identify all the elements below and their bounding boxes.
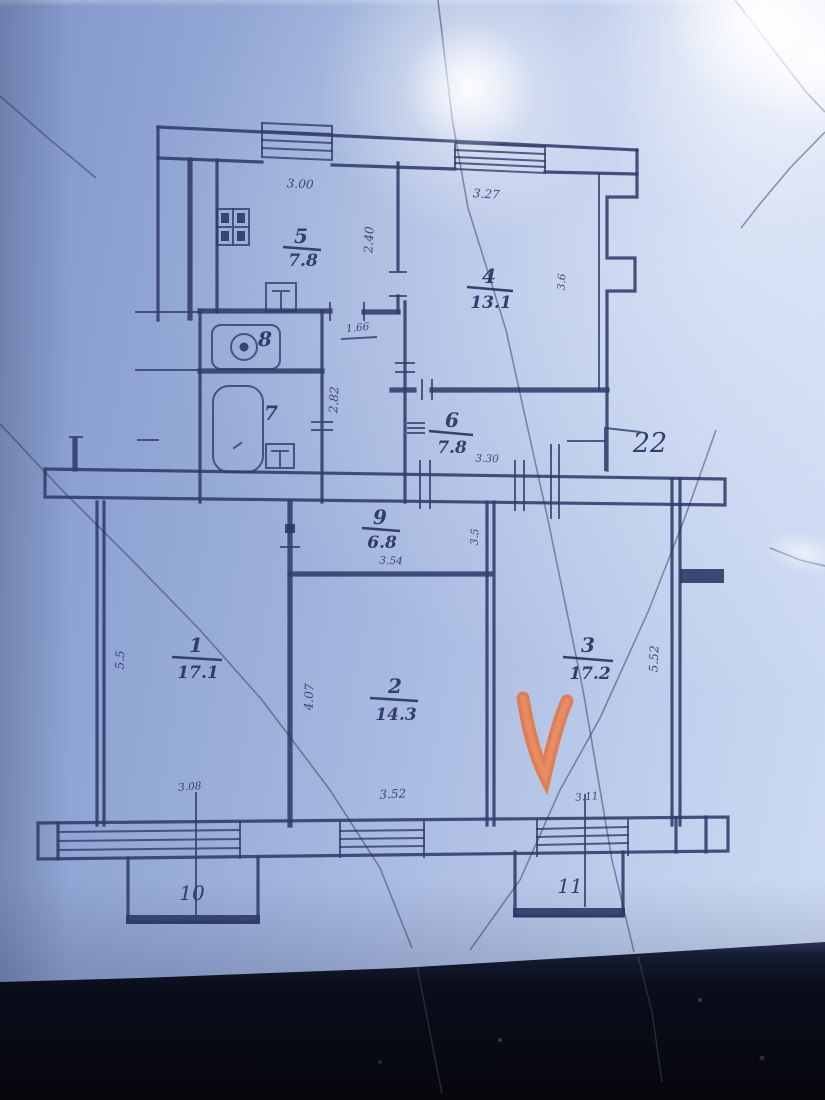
- stove-icon: [217, 209, 249, 245]
- dim-bath-depth: 2.82: [326, 386, 341, 414]
- labels-layer: 5 7.8 4 13.1 8 7 6 7.8 9 6.8 1: [172, 224, 667, 905]
- svg-text:2: 2: [387, 674, 402, 698]
- room-5-label: 5 7.8: [283, 224, 321, 271]
- svg-text:7.8: 7.8: [288, 251, 318, 271]
- dim-hall9-width: 3.54: [379, 555, 403, 568]
- balcony-11-label: 11: [557, 874, 582, 898]
- svg-text:5: 5: [294, 224, 308, 248]
- window-bottom-left: [58, 822, 240, 858]
- floorplan-drawing: 5 7.8 4 13.1 8 7 6 7.8 9 6.8 1: [0, 0, 825, 1100]
- dim-hall6-width: 3.30: [475, 453, 499, 466]
- room-7-label: 7: [264, 401, 278, 425]
- svg-text:3: 3: [581, 633, 595, 657]
- screen-crack: [735, 0, 825, 112]
- dim-room3-window: 3.11: [575, 790, 599, 804]
- room-8-label: 8: [257, 327, 272, 351]
- dim-room1-window: 3.08: [178, 780, 202, 794]
- svg-text:13.1: 13.1: [470, 293, 511, 313]
- floorplan-photo: 5 7.8 4 13.1 8 7 6 7.8 9 6.8 1: [0, 0, 825, 1100]
- loggia-22-label: 22: [632, 428, 667, 459]
- screen-crack: [741, 132, 825, 228]
- room-2-label: 2 14.3: [370, 674, 418, 725]
- dim-hall9-side: 3.5: [469, 528, 482, 546]
- bathtub-icon: [213, 386, 263, 472]
- correction-mark: [408, 423, 424, 433]
- window-bottom-right: [537, 820, 628, 856]
- dim-hall-166: 1.66: [345, 321, 370, 335]
- fixtures-layer: [212, 209, 424, 472]
- dim-room4-depth: 3.6: [556, 273, 569, 291]
- dim-room2-window: 3.52: [379, 786, 406, 801]
- dim-room2-depth: 4.07: [302, 683, 317, 712]
- dim-kitchen-depth: 2.40: [361, 226, 376, 255]
- screen-crack: [0, 424, 412, 948]
- svg-text:1: 1: [189, 633, 203, 657]
- window-top-left: [262, 123, 332, 160]
- check-annotation: [523, 698, 567, 776]
- dim-room3-depth: 5.52: [647, 645, 662, 672]
- svg-text:17.2: 17.2: [569, 664, 611, 684]
- photo-dark-edge: [0, 942, 825, 1100]
- room-9-label: 9 6.8: [362, 505, 400, 553]
- svg-text:7.8: 7.8: [437, 438, 467, 458]
- svg-text:9: 9: [373, 505, 387, 529]
- balcony-10-label: 10: [179, 881, 205, 905]
- dim-room1-depth: 5.5: [113, 650, 128, 670]
- svg-text:14.3: 14.3: [375, 705, 417, 725]
- room-4-label: 4 13.1: [467, 264, 513, 313]
- dim-room4-width: 3.27: [472, 186, 500, 202]
- dim-kitchen-width: 3.00: [287, 176, 315, 191]
- toilet-icon: [266, 444, 294, 468]
- screen-crack: [0, 96, 96, 178]
- svg-text:17.1: 17.1: [177, 663, 218, 683]
- window-bottom-center: [340, 822, 424, 857]
- screen-crack: [770, 548, 825, 566]
- room-1-label: 1 17.1: [172, 633, 222, 683]
- room-3-label: 3 17.2: [563, 633, 613, 684]
- svg-text:6: 6: [445, 408, 459, 432]
- svg-text:6.8: 6.8: [367, 533, 397, 553]
- window-top-right: [455, 143, 545, 173]
- tap-icon: [266, 283, 296, 311]
- room-6-label: 6 7.8: [429, 408, 473, 458]
- windows-layer: [58, 123, 628, 858]
